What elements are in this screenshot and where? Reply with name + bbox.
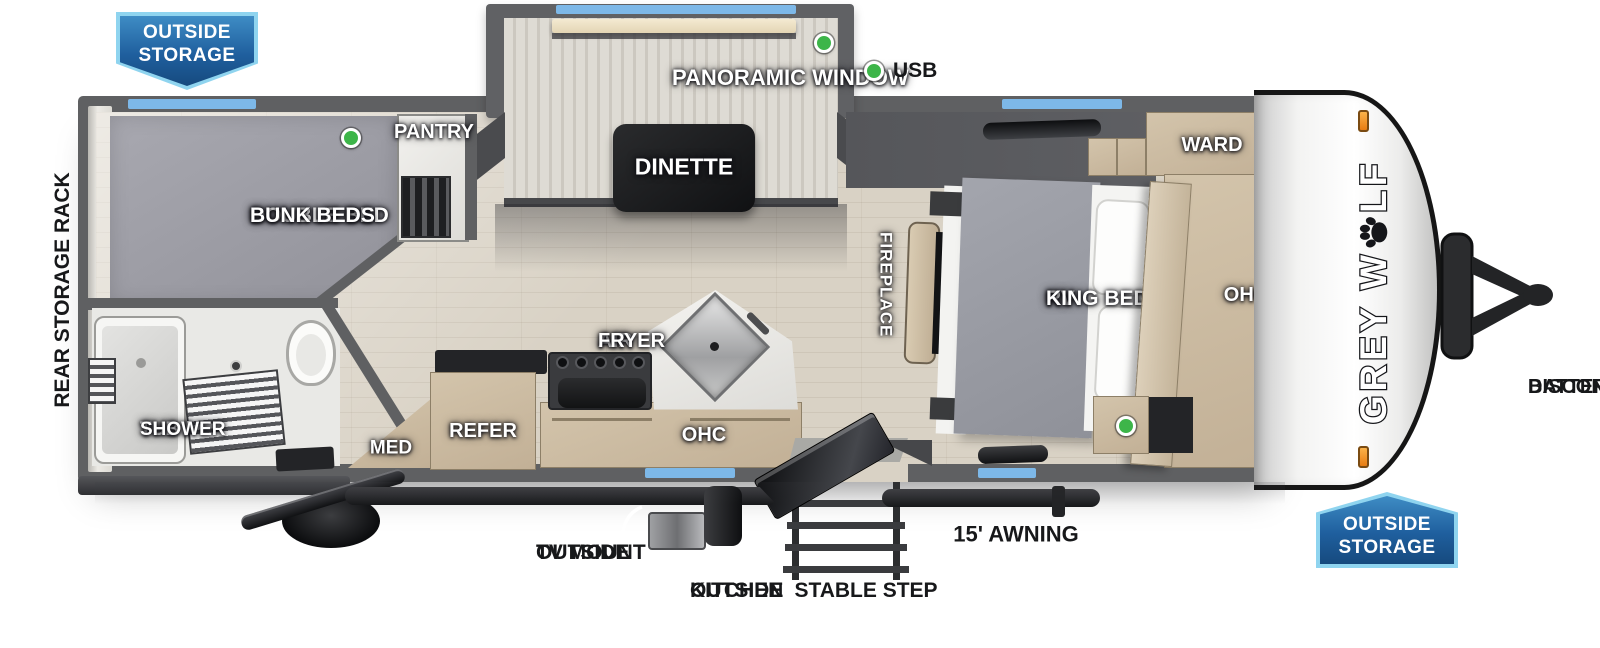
marker-light-bottom xyxy=(1358,446,1369,468)
kitchen-drawer-line xyxy=(552,418,652,421)
sink-drain xyxy=(710,342,719,351)
bunk-window-strip xyxy=(128,99,256,109)
kitchen-counter-base xyxy=(540,402,802,468)
refer-label: REFER xyxy=(449,421,517,443)
grey-wolf-logo: GREY W LF xyxy=(1353,160,1395,425)
floorplan-canvas: PANORAMIC WINDOW DINETTE DOUBLE BEDBUNK … xyxy=(0,0,1600,648)
marker-light-top xyxy=(1358,110,1369,132)
fireplace-label: FIREPLACE xyxy=(876,232,894,337)
dinette-label: DINETTE xyxy=(635,155,733,180)
usb-legend: USB xyxy=(864,59,937,83)
stable-step-rung3 xyxy=(785,544,907,551)
slideout-window-strip xyxy=(556,5,796,14)
outside-storage-badge-top: OUTSIDE STORAGE xyxy=(116,12,258,90)
pantry-label: PANTRY xyxy=(394,122,474,144)
air-fryer-oven xyxy=(558,378,646,408)
bedroom-window-strip xyxy=(1002,99,1122,109)
slide-floor-shadow xyxy=(495,204,847,289)
led-indicator-nightstand xyxy=(1116,416,1136,436)
toilet-lid xyxy=(296,334,326,376)
stove-burners xyxy=(556,356,648,370)
awning-label: 15' AWNING xyxy=(953,523,1078,548)
stable-step-rung4 xyxy=(783,566,909,573)
led-indicator-usb xyxy=(864,61,884,81)
tub-drain xyxy=(136,358,146,368)
stable-step-rung2 xyxy=(787,522,905,529)
ward-label: WARD xyxy=(1181,135,1242,157)
slideout-valance-shadow xyxy=(552,33,796,39)
outside-storage-badge-bottom: OUTSIDE STORAGE xyxy=(1316,492,1458,568)
ohc-kitchen-label: OHC xyxy=(682,425,726,447)
usb-label: USB xyxy=(893,59,937,83)
bath-vanity-sink xyxy=(275,446,334,471)
front-cap xyxy=(1254,90,1442,490)
brand-suffix: LF xyxy=(1353,160,1395,213)
led-indicator-bunk xyxy=(341,128,361,148)
bedroom-bottom-window-strip xyxy=(978,468,1036,478)
slideout-valance xyxy=(552,19,796,33)
led-indicator-slideout xyxy=(814,33,834,53)
bedroom-soundbar xyxy=(978,445,1049,464)
rear-storage-rack-label: REAR STORAGE RACK xyxy=(51,172,75,407)
pantry-steps xyxy=(401,176,451,238)
brand-prefix: GREY W xyxy=(1353,251,1395,424)
kitchen-drawer-line2 xyxy=(690,418,790,421)
shower-door-slats xyxy=(182,369,285,455)
small-cabinet-split xyxy=(1116,138,1118,176)
hitch-tongue xyxy=(1436,226,1558,366)
shower-head-dot xyxy=(230,360,242,372)
bedroom-storage-cube xyxy=(1149,397,1193,453)
paw-print-icon xyxy=(1357,215,1391,249)
shower-slats-corner xyxy=(88,358,116,404)
refrigerator-top xyxy=(435,350,547,374)
king-bed-pillow-1 xyxy=(1092,199,1151,298)
trailer-ground-shadow xyxy=(95,482,1285,504)
stable-step-label: STABLE STEP xyxy=(794,579,937,603)
med-label: MED xyxy=(370,439,412,460)
kitchen-window-strip xyxy=(645,468,735,478)
